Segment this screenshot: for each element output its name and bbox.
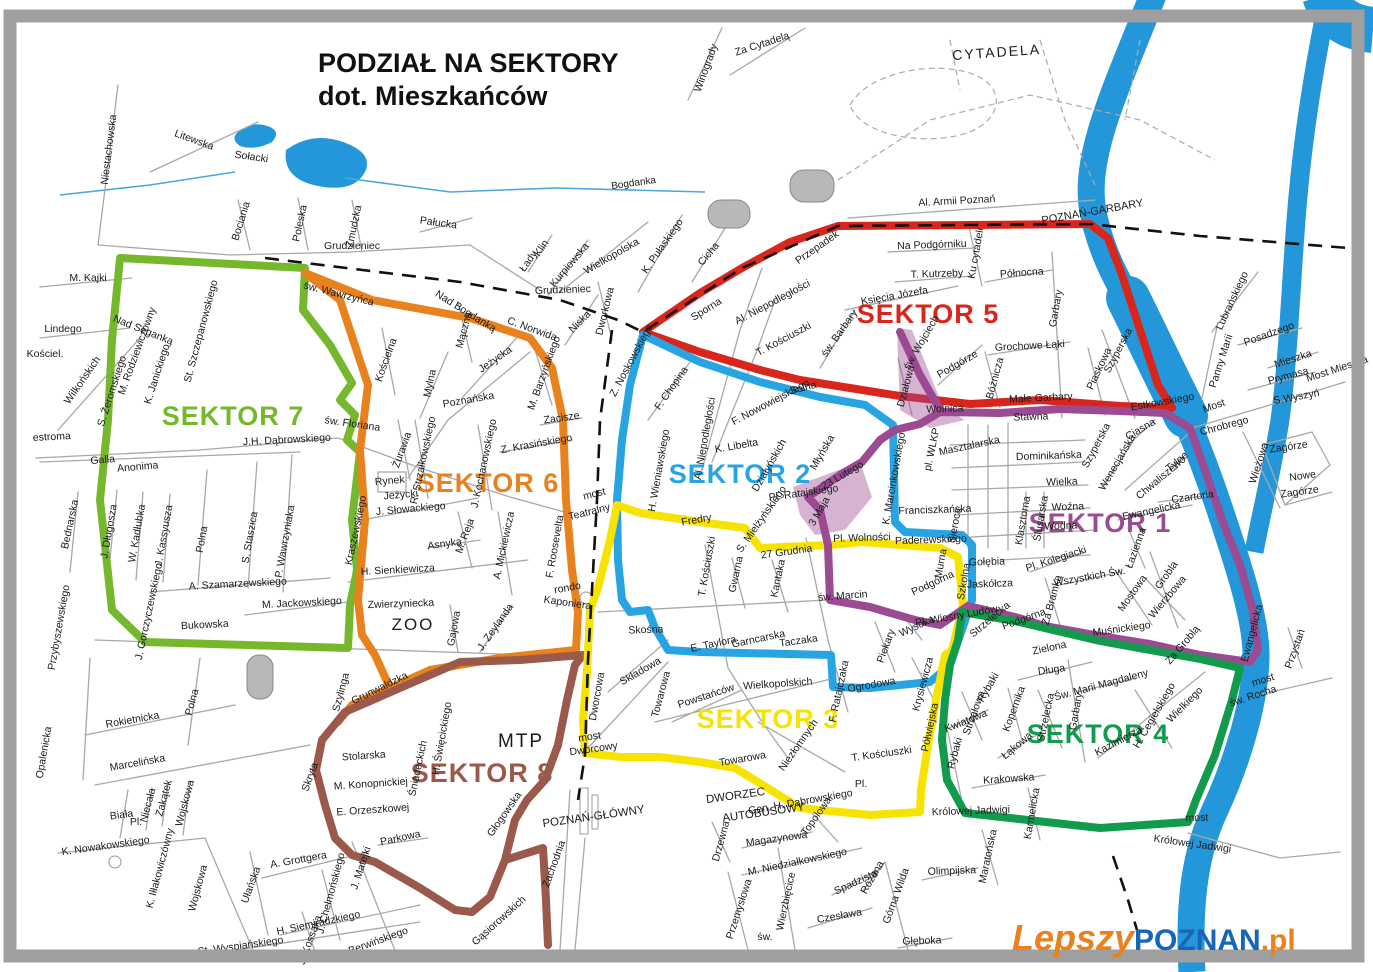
street-label: Most (1201, 397, 1227, 416)
street-label: Jeżycka (476, 344, 514, 376)
street-label: Karmelicka (1022, 787, 1043, 840)
street-label: św. Barbary (819, 307, 861, 359)
street-label: Ku cytadeli (966, 227, 987, 280)
street-label: Opalenicka (34, 725, 55, 779)
street-label: Parkowa (379, 828, 422, 848)
street-label: Składowa (618, 655, 664, 688)
street-label: Lindego (44, 323, 82, 335)
street-label: M. Kajki (69, 272, 106, 284)
street-label: P. Wawrzyniaka (273, 504, 298, 579)
street-label: Bukowska (181, 618, 230, 632)
street-label: Wielka (1046, 475, 1078, 488)
street-label: św. (757, 931, 772, 943)
street-label: Wierzbięcice (774, 871, 798, 932)
street-label: Stolarska (342, 748, 387, 763)
sector-label-3: SEKTOR 3 (697, 704, 840, 734)
street-label: Krakowska (983, 771, 1035, 787)
street-label: Sołacki (234, 149, 269, 166)
street-label: Dominikańska (1016, 449, 1082, 463)
warta-east-branch (1254, 0, 1330, 552)
street-label: T. Kutrzeby (910, 267, 964, 281)
watermark-poznan: POZNAN (1134, 924, 1261, 957)
solacki-pond-small (234, 124, 276, 147)
street-label: Wielkopolska (582, 236, 642, 277)
street-label: Rokietnicka (105, 709, 161, 730)
street-label: Szyperska (1080, 421, 1114, 470)
street-label: Panny Marii (1207, 333, 1236, 389)
sector-label-2: SEKTOR 2 (669, 459, 812, 489)
watermark-lepszy: Lepszy (1012, 917, 1136, 958)
street-label: Zacisze (543, 410, 581, 427)
street-label: most (1185, 812, 1208, 825)
street-label: Pl. Wolności (833, 531, 891, 545)
street-label: Woźna (1051, 500, 1084, 513)
street-label: Grochowe Łąki (995, 338, 1066, 354)
street-label: J. Słowackiego (375, 500, 446, 518)
street-label: Al. Niepodległości (733, 277, 812, 327)
street-label: K. Pułaskiego (639, 216, 686, 276)
street-label: Marcelińska (109, 752, 166, 774)
street-label: Gajowa (445, 610, 463, 647)
street-label: Jaskółcza (967, 577, 1014, 591)
street-label: M. Konopnickiej (333, 775, 408, 792)
street-label: Górna Wilda (881, 866, 912, 925)
street-label: Kościel. (27, 348, 64, 360)
street-label: Bednarska (59, 498, 81, 550)
street-label: most (582, 485, 607, 502)
street-label: Głęboka (902, 934, 942, 947)
street-label: Olimpijska (927, 864, 976, 878)
street-label: Podgórze (935, 348, 980, 381)
map-title-line2: dot. Mieszkańców (318, 81, 549, 111)
street-label: Wodna (1044, 519, 1078, 532)
street-label: Niestachowska (99, 114, 120, 186)
street-label: Ciasna (1123, 416, 1157, 443)
street-label: Wszystkich Św. (1053, 564, 1127, 589)
street-label: Rybaki (945, 736, 965, 770)
street-label: A. Grottgera (269, 849, 328, 871)
street-label: Młyńska (808, 433, 838, 472)
street-label: Kaponiera (543, 594, 592, 613)
street-label: Dworkowa (593, 286, 617, 337)
street-label: F. Roosevelta (544, 514, 567, 579)
street-label: Litewska (173, 128, 216, 153)
street-label: Anonima (117, 459, 159, 475)
street-label: J. Zeylanda (475, 601, 516, 652)
street-label: Teatralny (567, 501, 612, 523)
street-label: H. Sienkiewicza (361, 562, 436, 578)
stadium-shape (790, 170, 834, 202)
street-label: Wojskowa (186, 864, 210, 913)
street-label: K. Janickiego (142, 342, 173, 405)
street-label: Przystań (1283, 628, 1308, 671)
street-label: Gołębia (969, 555, 1006, 568)
street-label: M. Jackowskiego (262, 595, 343, 611)
street-label: J. Kassyusza (153, 504, 176, 567)
street-label: Zielona (1031, 639, 1067, 658)
street-label: Bociania (230, 200, 253, 242)
area-label-cytadela: CYTADELA (952, 41, 1042, 63)
street-label: Pałucka (419, 214, 458, 231)
street-label: Długa (1037, 662, 1066, 678)
street-label: Skośna (628, 623, 664, 636)
cytadela-paths (838, 40, 1215, 185)
street-label: A. Szamarzewskiego (189, 575, 288, 592)
street-label: Zagórze (1280, 483, 1320, 500)
street-label: Piekary (875, 627, 899, 665)
street-label: Stawna (1013, 410, 1049, 423)
street-label: Żurawia (389, 430, 414, 470)
street-label: Rybaki (975, 671, 1001, 705)
street-label: Pl. (130, 816, 142, 828)
street-label: Rynek (374, 474, 405, 489)
street-label: Niska (566, 308, 593, 335)
street-label: W. Kadłubka (126, 503, 148, 563)
street-label: Garbary (1047, 288, 1066, 328)
street-label: J.H. Dąbrowskiego (243, 432, 332, 449)
street-label: A. Mickiewicza (491, 510, 517, 580)
street-label: Zakątek (153, 778, 174, 818)
street-label: T. Kościuszki (851, 744, 913, 764)
street-label: Poleska (290, 204, 310, 243)
street-label: Czesława (816, 906, 863, 926)
street-label: St. Szczepanowskiego (182, 279, 221, 384)
map-canvas: PODZIAŁ NA SEKTORY dot. Mieszkańców CYTA… (0, 0, 1373, 972)
street-label: Pl. Kolegiacki (1024, 544, 1088, 575)
street-label: Al. Armii Poznań (918, 193, 996, 209)
street-label: Lubrańskiego (1214, 269, 1252, 331)
street-label: Polna (194, 525, 211, 554)
area-label-zoo: ZOO (392, 615, 435, 634)
stadium-shape (708, 200, 750, 228)
street-label: S. Staszica (240, 510, 261, 564)
street-label: T. Kościuszki (754, 320, 813, 359)
street-label: Garncarska (731, 628, 787, 651)
street-label: F. Chopina (652, 364, 691, 412)
street-label: Ogrodowa (847, 675, 897, 695)
street-label: Grudzieniec (324, 240, 380, 252)
street-label: Kościelna (373, 336, 400, 383)
street-label: Mylna (421, 368, 439, 398)
stadium-shape (247, 655, 273, 699)
bogdanka-stream (60, 172, 705, 195)
watermark-pl: .pl (1261, 924, 1296, 957)
street-label: Pl. (855, 778, 867, 790)
street-label: Zwierzyniecka (367, 597, 434, 611)
street-label: T. Kościuszki (696, 536, 718, 598)
street-label: Maratońska (976, 828, 999, 884)
street-label: Wolnica (926, 402, 964, 415)
street-label: E. Orzeszkowej (336, 801, 410, 818)
street-label: Poznańska (442, 390, 495, 411)
street-label: Przybyszewskiego (46, 584, 73, 671)
street-label: Kantaka (768, 558, 788, 598)
street-label: Masztalarska (938, 434, 1001, 459)
plaza-circle (109, 856, 121, 868)
street-label: Cicha (695, 240, 722, 268)
street-label: Północna (1000, 265, 1045, 280)
street-label: Grudzieniec (535, 283, 591, 297)
street-label: Na Podgórniku (897, 238, 967, 252)
street-label: Nowe (1288, 468, 1316, 484)
street-label: Św. Marii Magdaleny (1053, 666, 1151, 704)
street-label: Towarowa (718, 749, 767, 769)
city-sector-map: PODZIAŁ NA SEKTORY dot. Mieszkańców CYTA… (0, 0, 1373, 972)
street-label: Galla (90, 453, 116, 467)
street-label: Przemysłowa (724, 877, 755, 940)
sector-label-7: SEKTOR 7 (162, 401, 305, 431)
street-label: Gwarna (726, 555, 745, 594)
watermark-logo: LepszyPOZNAN.pl (1012, 917, 1296, 958)
street-label: K. Nowakowskiego (61, 834, 151, 858)
area-label-mtp: MTP (498, 731, 544, 752)
street-label: Wojskowa (173, 779, 197, 828)
map-title-line1: PODZIAŁ NA SEKTORY (318, 48, 619, 78)
street-label: Wielkopolskich (743, 676, 813, 693)
title-block: PODZIAŁ NA SEKTORY dot. Mieszkańców (318, 48, 619, 111)
street-label: Wilkońskich (62, 354, 104, 406)
solacki-pond-large (286, 138, 367, 188)
street-label: Winogrady (692, 42, 721, 94)
street-label: Towarowa (649, 670, 673, 719)
street-label: Kopernika (1000, 685, 1028, 734)
street-label: estroma (33, 430, 72, 444)
